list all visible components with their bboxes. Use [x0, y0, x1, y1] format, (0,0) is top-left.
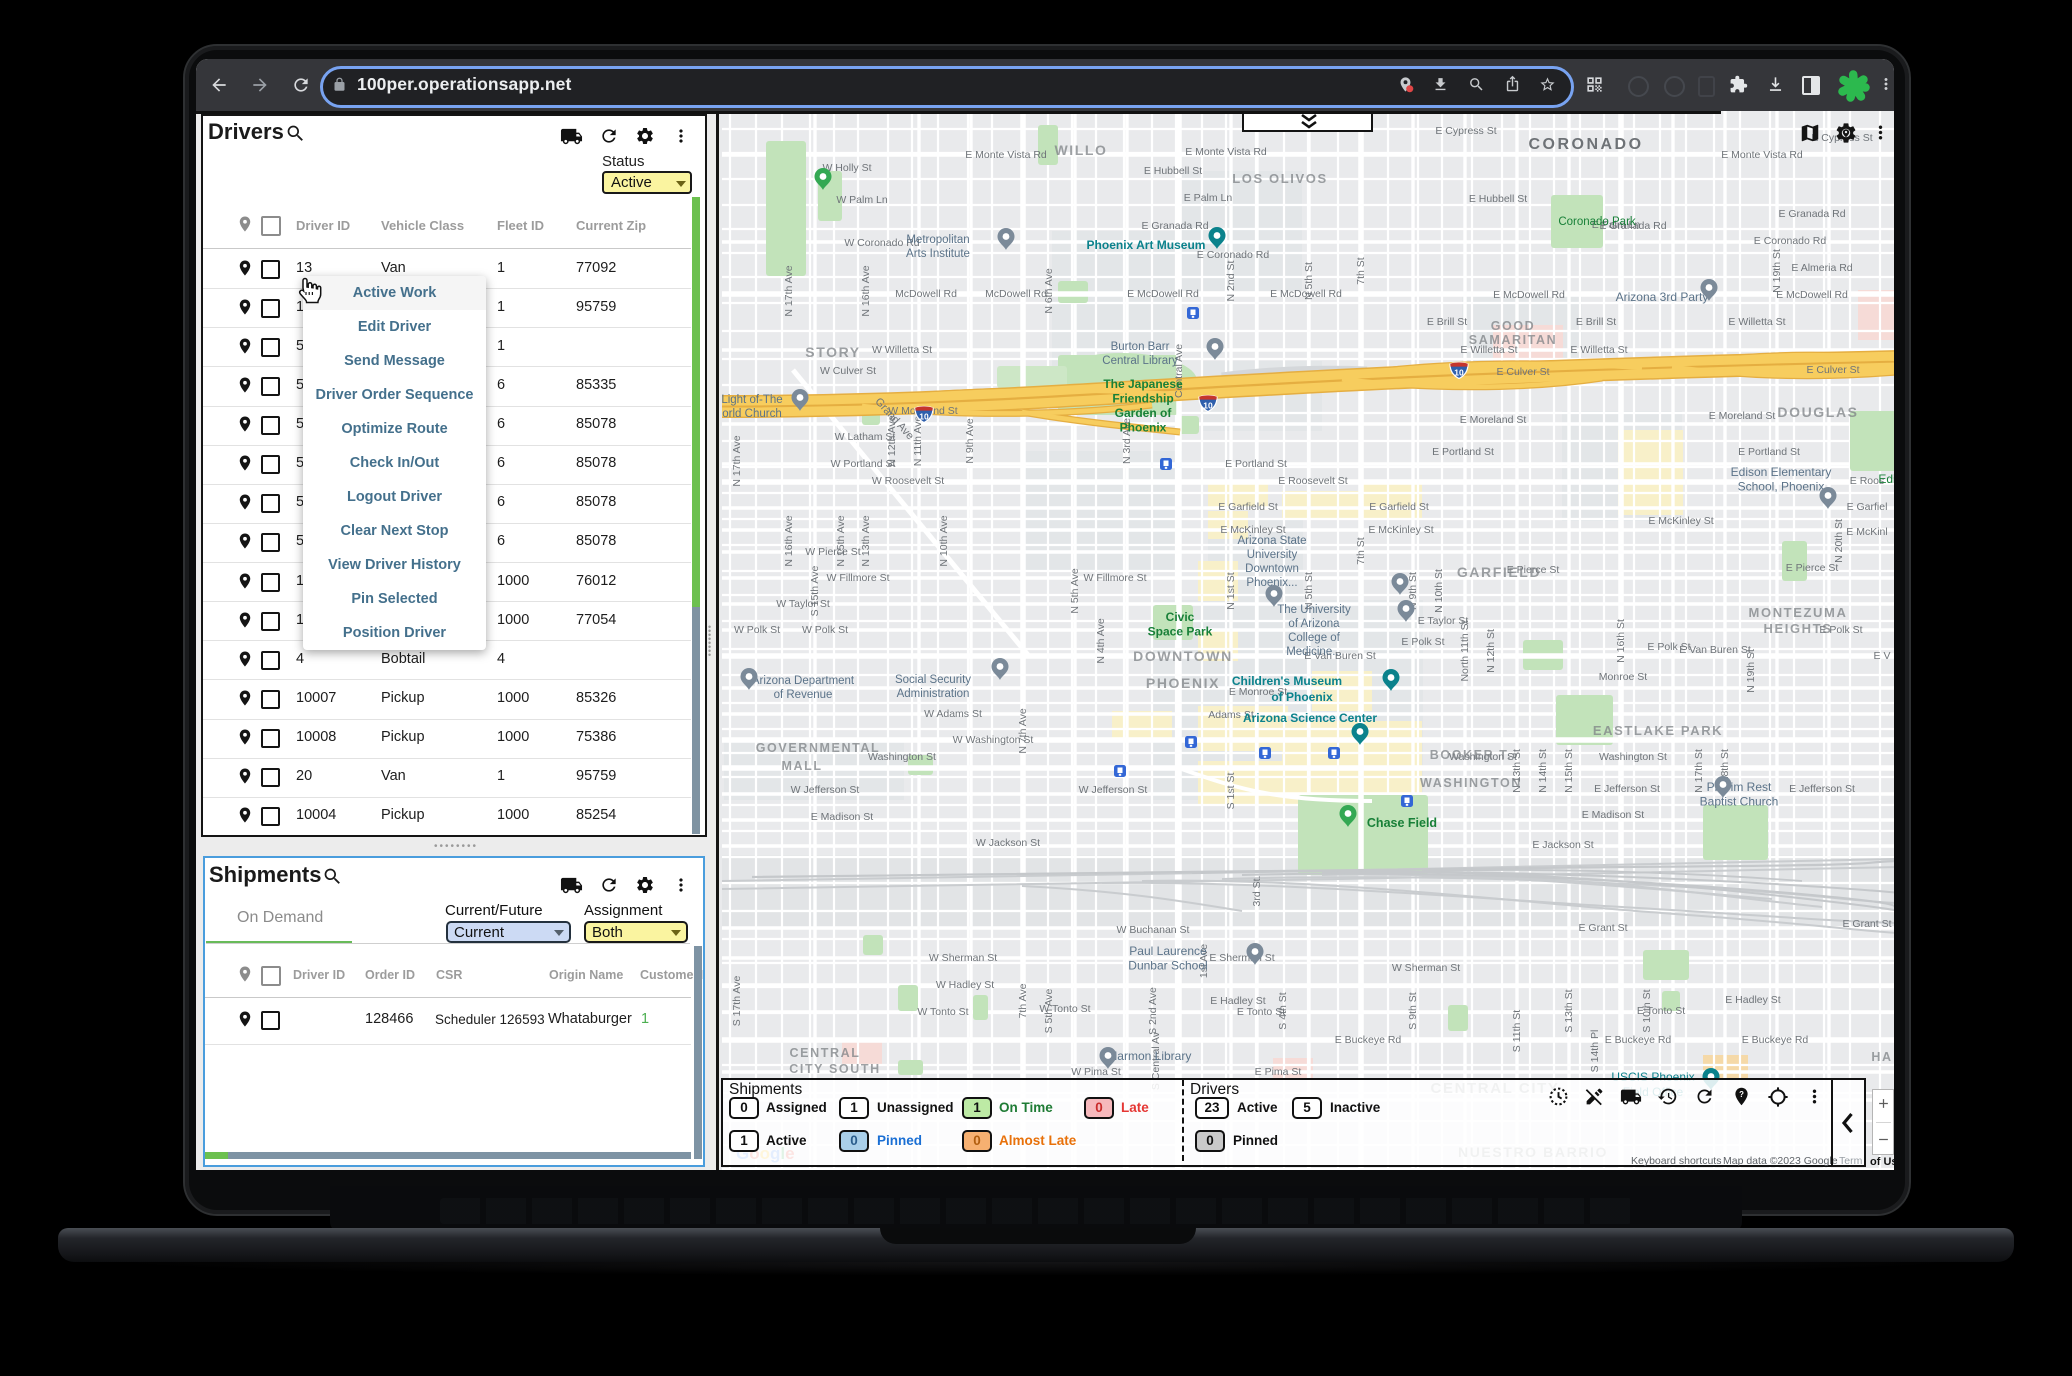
svg-text:MALL: MALL: [781, 759, 822, 773]
svg-text:Baptist Church: Baptist Church: [1700, 795, 1779, 809]
svg-text:E Hubbell St: E Hubbell St: [1469, 193, 1527, 205]
svg-text:N 13th Ave: N 13th Ave: [860, 515, 872, 566]
svg-text:Space Park: Space Park: [1148, 625, 1213, 639]
svg-text:WILLO: WILLO: [1054, 142, 1107, 158]
svg-text:E Brill St: E Brill St: [1576, 316, 1616, 328]
svg-text:S 17th Ave: S 17th Ave: [731, 976, 743, 1027]
svg-text:E Portland St: E Portland St: [1225, 458, 1287, 470]
svg-text:3rd St.: 3rd St.: [1251, 876, 1263, 907]
svg-text:HA: HA: [1871, 1050, 1892, 1064]
svg-text:E Moreland St: E Moreland St: [1709, 410, 1776, 422]
svg-text:Phoenix Art Museum: Phoenix Art Museum: [1087, 238, 1206, 252]
svg-text:CENTRAL: CENTRAL: [790, 1046, 861, 1060]
svg-text:E Portland St: E Portland St: [1432, 446, 1494, 458]
svg-text:E McKinl: E McKinl: [1846, 526, 1887, 538]
svg-text:Arizona Department: Arizona Department: [752, 675, 855, 687]
svg-text:E Coronado Rd: E Coronado Rd: [1197, 249, 1270, 261]
svg-text:Administration: Administration: [897, 688, 970, 700]
svg-text:W Taylor St: W Taylor St: [776, 598, 830, 610]
svg-text:E Garfield St: E Garfield St: [1218, 501, 1278, 513]
svg-text:N 10th Ave: N 10th Ave: [938, 515, 950, 566]
svg-text:N 5th St: N 5th St: [1303, 262, 1315, 300]
svg-text:S 10th St: S 10th St: [1641, 989, 1653, 1032]
svg-text:Children's Museum: Children's Museum: [1232, 674, 1342, 688]
svg-text:S 4th St: S 4th St: [1277, 992, 1289, 1029]
svg-text:North 11th St: North 11th St: [1459, 620, 1471, 681]
svg-text:E Jefferson St: E Jefferson St: [1594, 783, 1660, 795]
svg-text:E Jefferson St: E Jefferson St: [1789, 783, 1855, 795]
svg-text:SAMARITAN: SAMARITAN: [1469, 333, 1557, 347]
svg-text:E Madison St: E Madison St: [1582, 809, 1645, 821]
svg-text:E Granada Rd: E Granada Rd: [1778, 208, 1845, 220]
svg-text:E Monte Vista Rd: E Monte Vista Rd: [1185, 146, 1267, 158]
svg-text:Burton Barr: Burton Barr: [1111, 341, 1170, 353]
svg-text:E Cypress St: E Cypress St: [1435, 125, 1496, 137]
svg-text:N 2nd St: N 2nd St: [1225, 260, 1237, 301]
svg-text:E Hubbell St: E Hubbell St: [1144, 165, 1202, 177]
svg-text:W Jackson St: W Jackson St: [976, 837, 1040, 849]
svg-text:E Monte Vista Rd: E Monte Vista Rd: [1721, 149, 1803, 161]
svg-text:University: University: [1247, 549, 1298, 561]
svg-text:Edison Elementary: Edison Elementary: [1731, 465, 1832, 479]
svg-text:W Roosevelt St: W Roosevelt St: [872, 475, 944, 487]
svg-text:N 16th Ave: N 16th Ave: [783, 515, 795, 566]
svg-text:E Buckeye Rd: E Buckeye Rd: [1605, 1034, 1672, 1046]
svg-text:Arizona State: Arizona State: [1237, 535, 1306, 547]
svg-text:PHOENIX: PHOENIX: [1146, 675, 1220, 691]
svg-text:N 17th Ave: N 17th Ave: [783, 265, 795, 316]
svg-text:E Polk St: E Polk St: [1401, 636, 1444, 648]
svg-text:Arizona Science Center: Arizona Science Center: [1243, 711, 1377, 725]
svg-text:7th St: 7th St: [1355, 257, 1367, 285]
svg-text:Arizona 3rd Party: Arizona 3rd Party: [1616, 290, 1709, 304]
svg-text:N 5th Ave: N 5th Ave: [1069, 568, 1081, 613]
svg-text:N 6th Ave: N 6th Ave: [1043, 268, 1055, 313]
svg-text:E Jackson St: E Jackson St: [1532, 839, 1593, 851]
svg-text:BOOKER T.: BOOKER T.: [1430, 748, 1512, 762]
svg-text:S 1st St: S 1st St: [1225, 773, 1237, 810]
svg-text:E McDowell Rd: E McDowell Rd: [1493, 289, 1565, 301]
svg-text:E Granada Rd: E Granada Rd: [1141, 220, 1208, 232]
svg-text:GOOD: GOOD: [1491, 319, 1536, 333]
svg-text:S 14th Pl: S 14th Pl: [1589, 1030, 1601, 1073]
svg-text:N 15th Ave: N 15th Ave: [835, 515, 847, 566]
svg-text:Metropolitan: Metropolitan: [906, 234, 969, 246]
svg-text:Harmon Library: Harmon Library: [1109, 1049, 1192, 1063]
svg-text:E Buckeye Rd: E Buckeye Rd: [1742, 1034, 1809, 1046]
svg-text:S 11th St: S 11th St: [1511, 1010, 1523, 1052]
svg-text:N 9th Ave: N 9th Ave: [964, 418, 976, 463]
svg-text:N 19th St: N 19th St: [1745, 649, 1757, 693]
svg-text:N 12th St: N 12th St: [1485, 629, 1497, 673]
svg-text:N 11th Ave: N 11th Ave: [912, 416, 924, 467]
svg-text:orld Church: orld Church: [722, 408, 781, 420]
svg-text:E Willetta St: E Willetta St: [1728, 316, 1785, 328]
svg-text:HEIGHTS: HEIGHTS: [1764, 621, 1833, 636]
svg-text:N 16th Ave: N 16th Ave: [860, 265, 872, 316]
svg-text:W Jefferson St: W Jefferson St: [1079, 784, 1148, 796]
svg-text:W Hadley St: W Hadley St: [936, 979, 994, 991]
svg-text:W Buchanan St: W Buchanan St: [1117, 924, 1190, 936]
svg-text:Garden of: Garden of: [1115, 406, 1173, 420]
svg-text:E Pima St: E Pima St: [1255, 1066, 1302, 1078]
svg-text:E Sherman St: E Sherman St: [1209, 952, 1274, 964]
svg-text:GARFIELD: GARFIELD: [1457, 564, 1541, 580]
svg-text:W Fillmore St: W Fillmore St: [1084, 572, 1147, 584]
svg-text:Civic: Civic: [1166, 610, 1195, 624]
svg-text:W Culver St: W Culver St: [820, 365, 876, 377]
svg-text:S 9th St: S 9th St: [1407, 992, 1419, 1029]
svg-text:Friendship: Friendship: [1112, 392, 1173, 406]
svg-text:W Pierce St: W Pierce St: [805, 546, 861, 558]
svg-text:N 16th St: N 16th St: [1615, 619, 1627, 663]
svg-text:of Revenue: of Revenue: [774, 689, 833, 701]
svg-text:E Portland St: E Portland St: [1738, 446, 1800, 458]
svg-text:of Arizona: of Arizona: [1288, 618, 1340, 630]
svg-text:DOWNTOWN: DOWNTOWN: [1133, 648, 1233, 664]
svg-text:E Grant St: E Grant St: [1578, 922, 1627, 934]
svg-text:E Pierce St: E Pierce St: [1786, 562, 1839, 574]
svg-text:Phoenix: Phoenix: [1120, 421, 1167, 435]
svg-text:Medicine...: Medicine...: [1286, 646, 1342, 658]
svg-text:College of: College of: [1288, 632, 1341, 644]
svg-text:N 15th St: N 15th St: [1563, 749, 1575, 793]
svg-text:E V: E V: [1874, 650, 1891, 662]
svg-text:EASTLAKE PARK: EASTLAKE PARK: [1593, 723, 1723, 738]
svg-text:Washington St: Washington St: [1599, 751, 1667, 763]
svg-text:E Monte Vista Rd: E Monte Vista Rd: [965, 149, 1047, 161]
svg-text:W Tonto St: W Tonto St: [917, 1006, 968, 1018]
svg-text:Edis: Edis: [1878, 472, 1894, 486]
svg-text:GOVERNMENTAL: GOVERNMENTAL: [756, 741, 881, 755]
svg-text:Downtown: Downtown: [1245, 563, 1299, 575]
svg-text:Central Library: Central Library: [1102, 355, 1178, 367]
svg-text:of Phoenix: of Phoenix: [1271, 690, 1333, 704]
svg-text:E Coronado Rd: E Coronado Rd: [1754, 235, 1827, 247]
svg-text:E Buckeye Rd: E Buckeye Rd: [1335, 1034, 1402, 1046]
svg-text:Paul Laurence: Paul Laurence: [1129, 944, 1207, 958]
svg-text:7th St: 7th St: [1355, 537, 1367, 565]
svg-text:W Palm Ln: W Palm Ln: [836, 194, 888, 206]
svg-text:W Sherman St: W Sherman St: [1392, 962, 1460, 974]
svg-text:E Grant St: E Grant St: [1842, 918, 1891, 930]
svg-text:E Culver St: E Culver St: [1806, 364, 1859, 376]
svg-text:E Palm Ln: E Palm Ln: [1184, 192, 1233, 204]
svg-text:N 4th Ave: N 4th Ave: [1095, 618, 1107, 663]
svg-text:S 5th Ave: S 5th Ave: [1043, 988, 1055, 1033]
svg-text:N 17th St: N 17th St: [1693, 749, 1705, 793]
svg-text:LOS OLIVOS: LOS OLIVOS: [1232, 171, 1327, 186]
svg-text:E Culver St: E Culver St: [1496, 366, 1549, 378]
svg-text:N 19th St: N 19th St: [1771, 249, 1783, 293]
svg-text:W Sherman St: W Sherman St: [929, 952, 997, 964]
svg-text:Monroe St: Monroe St: [1599, 671, 1648, 683]
svg-text:S 2nd Ave: S 2nd Ave: [1147, 987, 1159, 1035]
svg-text:The Japanese: The Japanese: [1103, 377, 1183, 391]
svg-text:N 20th St: N 20th St: [1833, 519, 1845, 563]
svg-text:McDowell Rd: McDowell Rd: [895, 288, 957, 300]
svg-text:10: 10: [1454, 368, 1464, 378]
svg-text:Social Security: Social Security: [895, 674, 971, 686]
svg-text:E McDowell Rd: E McDowell Rd: [1127, 288, 1199, 300]
svg-text:W Pima St: W Pima St: [1071, 1066, 1121, 1078]
svg-text:N 1st St: N 1st St: [1225, 572, 1237, 609]
svg-text:E Moreland St: E Moreland St: [1460, 414, 1527, 426]
svg-text:E Garfield St: E Garfield St: [1369, 501, 1429, 513]
svg-text:CITY SOUTH: CITY SOUTH: [789, 1062, 880, 1076]
svg-text:N 7th Ave: N 7th Ave: [1017, 708, 1029, 753]
svg-text:7th Ave: 7th Ave: [1017, 983, 1029, 1018]
svg-text:S 15th Ave: S 15th Ave: [809, 566, 821, 617]
svg-text:WASHINGTON: WASHINGTON: [1420, 776, 1522, 790]
svg-text:W Fillmore St: W Fillmore St: [827, 572, 890, 584]
svg-text:E Brill St: E Brill St: [1427, 316, 1467, 328]
svg-text:Chase Field: Chase Field: [1367, 816, 1437, 830]
svg-text:N 10th St: N 10th St: [1433, 569, 1445, 613]
svg-text:E Roosevelt St: E Roosevelt St: [1278, 475, 1348, 487]
svg-text:Coronado Park: Coronado Park: [1558, 216, 1636, 228]
svg-text:E Hadley St: E Hadley St: [1725, 994, 1781, 1006]
svg-text:MONTEZUMA: MONTEZUMA: [1749, 605, 1848, 620]
svg-text:E McDowell Rd: E McDowell Rd: [1776, 289, 1848, 301]
svg-text:W Adams St: W Adams St: [924, 708, 982, 720]
svg-text:W Jefferson St: W Jefferson St: [791, 784, 860, 796]
svg-text:E Garfiel: E Garfiel: [1847, 501, 1888, 513]
svg-text:CORONADO: CORONADO: [1528, 136, 1643, 153]
svg-text:?: ?: [1739, 1090, 1744, 1099]
svg-text:W Willetta St: W Willetta St: [872, 344, 932, 356]
svg-text:10: 10: [919, 412, 929, 422]
svg-text:STORY: STORY: [805, 344, 860, 360]
svg-text:E Almeria Rd: E Almeria Rd: [1791, 262, 1852, 274]
svg-text:E Willetta St: E Willetta St: [1570, 344, 1627, 356]
svg-text:W Polk St: W Polk St: [802, 624, 848, 636]
svg-text:DOUGLAS: DOUGLAS: [1777, 404, 1858, 420]
svg-text:S 13th St: S 13th St: [1563, 989, 1575, 1032]
svg-text:E Van Buren St: E Van Buren St: [1679, 644, 1751, 656]
svg-text:McDowell Rd: McDowell Rd: [985, 288, 1047, 300]
svg-text:Light of-The: Light of-The: [722, 394, 783, 406]
svg-text:E Madison St: E Madison St: [811, 811, 874, 823]
svg-text:Arts Institute: Arts Institute: [906, 248, 970, 260]
svg-text:W Polk St: W Polk St: [734, 624, 780, 636]
svg-text:N 17th Ave: N 17th Ave: [731, 435, 743, 486]
svg-text:School, Phoenix: School, Phoenix: [1738, 480, 1825, 494]
svg-text:10: 10: [1203, 401, 1213, 411]
svg-text:E McKinley St: E McKinley St: [1648, 515, 1713, 527]
svg-text:E McKinley St: E McKinley St: [1368, 524, 1433, 536]
svg-text:Dunbar School: Dunbar School: [1128, 959, 1207, 973]
svg-text:N 14th St: N 14th St: [1537, 749, 1549, 793]
svg-text:The University: The University: [1277, 604, 1351, 616]
